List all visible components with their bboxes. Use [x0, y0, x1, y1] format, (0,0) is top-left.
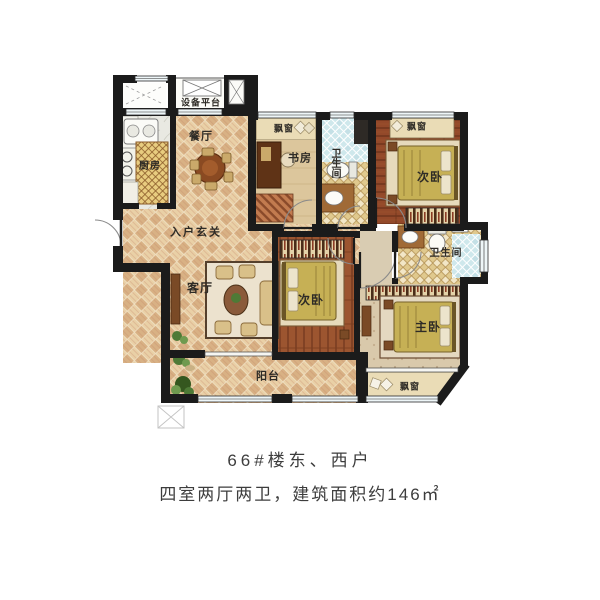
bath2-sink	[402, 231, 418, 243]
bath1-sink	[325, 191, 343, 205]
dining-chair	[192, 174, 201, 184]
label-study: 书房	[288, 154, 312, 165]
window	[178, 109, 222, 115]
label-master-bedroom: 主卧	[415, 321, 441, 333]
window	[292, 396, 358, 402]
armchair	[241, 323, 257, 336]
dining-chair	[190, 160, 199, 170]
dining-chair	[222, 153, 231, 163]
bay-inner-line	[366, 368, 458, 372]
room-bathroom-1	[316, 112, 374, 224]
armchair	[216, 266, 233, 279]
label-living-room: 客厅	[187, 282, 213, 294]
window	[480, 240, 488, 272]
dining-chair	[205, 182, 217, 190]
caption-layout-area: 四室两厅两卫，建筑面积约146㎡	[159, 480, 440, 505]
dining-chair	[202, 148, 214, 156]
room-master-bedroom	[360, 284, 460, 368]
sliding-door	[205, 352, 272, 356]
entry-door-arc	[95, 220, 121, 246]
nightstand	[340, 330, 349, 339]
label-bedroom-middle: 次卧	[298, 294, 324, 306]
label-bathroom-1: 卫生间	[329, 148, 339, 178]
wardrobe	[406, 208, 458, 224]
label-equipment-platform: 设备平台	[181, 99, 221, 108]
armchair	[215, 321, 231, 334]
label-bathroom-master: 卫生间	[430, 249, 463, 259]
label-kitchen: 厨房	[139, 162, 161, 172]
window	[258, 112, 316, 118]
bed	[282, 262, 336, 320]
caption-building-unit: 66#楼东、西户	[227, 446, 372, 471]
window	[392, 112, 454, 118]
nightstand	[388, 142, 397, 151]
label-bay-window-master: 飘窗	[400, 383, 420, 392]
label-bay-window-study: 飘窗	[274, 125, 294, 134]
dining-chair	[224, 172, 233, 182]
label-balcony: 阳台	[256, 372, 280, 383]
nightstand	[384, 341, 393, 350]
armchair	[239, 265, 255, 278]
floor-plan-canvas: 设备平台 餐厅 厨房 飘窗 书房 卫生间 飘窗 次卧 入户玄关 客厅 次卧 卫生…	[0, 0, 600, 600]
room-study	[253, 118, 316, 224]
dresser	[362, 306, 371, 336]
window	[366, 396, 438, 402]
nightstand	[384, 300, 393, 309]
label-bay-window-bedroom-north: 飘窗	[407, 123, 427, 132]
window	[330, 112, 354, 118]
label-entry-foyer: 入户玄关	[170, 228, 222, 239]
label-bedroom-north: 次卧	[417, 171, 443, 183]
window	[126, 109, 166, 115]
tv-cabinet	[171, 274, 180, 324]
window	[198, 396, 272, 402]
label-dining-room: 餐厅	[189, 132, 213, 143]
window-cross-icon	[183, 80, 221, 96]
window	[135, 76, 168, 81]
window-cross-icon	[158, 406, 184, 428]
